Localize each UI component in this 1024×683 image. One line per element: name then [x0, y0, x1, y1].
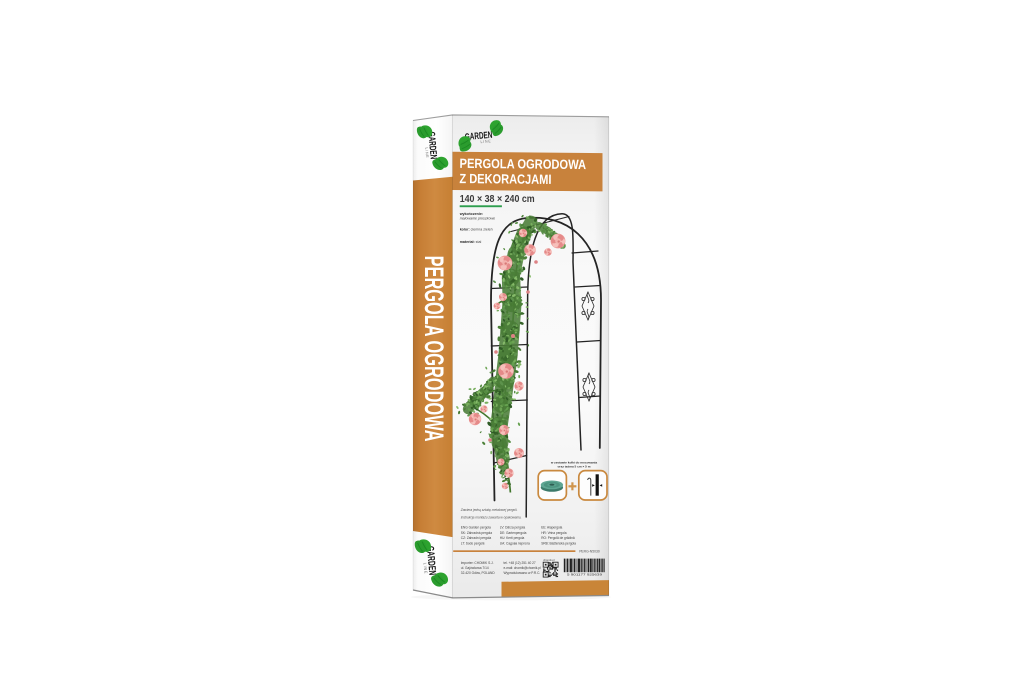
- svg-text:SRB: Baštenska pergola: SRB: Baštenska pergola: [541, 542, 576, 546]
- svg-text:RO: Pergolă de grădină: RO: Pergolă de grădină: [541, 536, 575, 540]
- svg-text:LT: Sodo pergolė: LT: Sodo pergolė: [461, 542, 485, 546]
- svg-text:malowanie proszkowe: malowanie proszkowe: [460, 217, 495, 221]
- svg-text:materiał: stal: materiał: stal: [460, 240, 482, 244]
- svg-text:SK: Záhradná pergola: SK: Záhradná pergola: [461, 531, 492, 535]
- svg-text:32-420 Gdów, POLAND: 32-420 Gdów, POLAND: [461, 571, 496, 575]
- svg-text:LV: Dārza pergola: LV: Dārza pergola: [500, 526, 526, 530]
- svg-text:140 × 38 × 240 cm: 140 × 38 × 240 cm: [460, 194, 535, 205]
- svg-text:UA: Садова пергола: UA: Садова пергола: [500, 542, 530, 546]
- svg-text:wykończenie:: wykończenie:: [459, 212, 483, 216]
- svg-text:e-mail: chomik@chomik.pl: e-mail: chomik@chomik.pl: [504, 566, 542, 570]
- svg-text:EE: Aiapergola: EE: Aiapergola: [541, 526, 562, 530]
- svg-text:PERGOLA OGRODOWA: PERGOLA OGRODOWA: [460, 156, 587, 172]
- svg-text:Importer: CHOMIK S.J.: Importer: CHOMIK S.J.: [461, 561, 494, 565]
- svg-text:HR: Vrtna pergola: HR: Vrtna pergola: [541, 531, 567, 535]
- svg-text:DE: Gartenpergola: DE: Gartenpergola: [500, 531, 527, 535]
- svg-text:CZ: Zahradní pergola: CZ: Zahradní pergola: [461, 536, 492, 540]
- svg-text:Zawiera jedną sztukę metalowej: Zawiera jedną sztukę metalowej pergoli.: [460, 508, 518, 512]
- svg-text:ul. Gajówkowa 7/14: ul. Gajówkowa 7/14: [461, 566, 489, 570]
- svg-text:Z DEKORACJAMI: Z DEKORACJAMI: [459, 171, 551, 187]
- svg-text:PERG-N5030: PERG-N5030: [579, 549, 600, 554]
- svg-text:5 901177 925639: 5 901177 925639: [567, 572, 603, 576]
- svg-text:kolor: ciemna zieleń: kolor: ciemna zieleń: [460, 228, 493, 232]
- svg-text:Instrukcja montażu zawarta w o: Instrukcja montażu zawarta w opakowaniu.: [461, 515, 522, 519]
- svg-text:Wyprodukowano w P.R.C.: Wyprodukowano w P.R.C.: [504, 571, 541, 575]
- svg-text:ENG Garden pergola: ENG Garden pergola: [461, 526, 491, 530]
- svg-text:tel. +48 (12) 251 40 27: tel. +48 (12) 251 40 27: [504, 561, 536, 565]
- svg-text:HU: Kerti pergola: HU: Kerti pergola: [500, 536, 525, 540]
- svg-text:PERGOLA OGRODOWA: PERGOLA OGRODOWA: [419, 256, 449, 442]
- svg-text:oraz taśma 5 cm × 5 m: oraz taśma 5 cm × 5 m: [558, 464, 591, 468]
- svg-text:chomik.pl: chomik.pl: [543, 558, 555, 562]
